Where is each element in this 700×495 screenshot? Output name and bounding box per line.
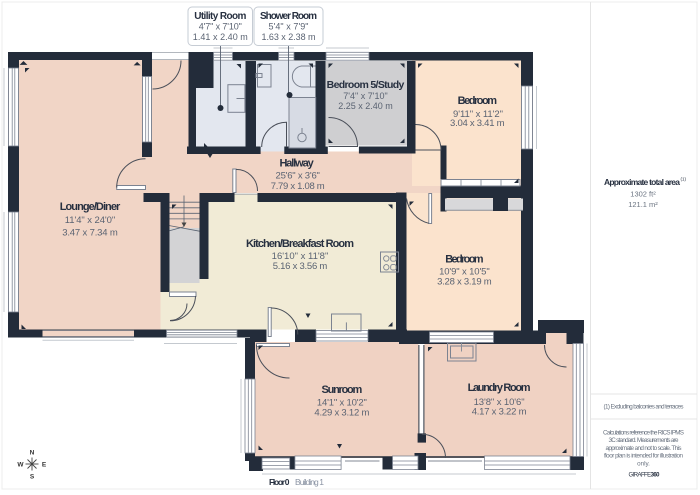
svg-text:Hallway: Hallway — [279, 158, 314, 170]
svg-text:Lounge/Diner: Lounge/Diner — [60, 201, 121, 213]
svg-text:1302 ft²: 1302 ft² — [630, 190, 656, 199]
svg-text:Bedroom: Bedroom — [445, 254, 484, 266]
svg-text:3C standard. Measurements are: 3C standard. Measurements are — [609, 437, 679, 444]
svg-text:S: S — [30, 474, 35, 481]
svg-text:Floor 0: Floor 0 — [269, 477, 290, 487]
svg-text:3.04 x 3.41 m: 3.04 x 3.41 m — [450, 118, 505, 129]
svg-text:Kitchen/Breakfast Room: Kitchen/Breakfast Room — [246, 238, 354, 250]
svg-text:(1): (1) — [681, 177, 687, 182]
svg-text:(1) Excluding balconies and te: (1) Excluding balconies and terraces — [604, 404, 684, 411]
svg-text:7.79 x 1.08 m: 7.79 x 1.08 m — [271, 181, 325, 192]
svg-text:3.28 x 3.19 m: 3.28 x 3.19 m — [437, 277, 492, 288]
svg-text:Approximate total area: Approximate total area — [604, 177, 680, 187]
svg-text:Sunroom: Sunroom — [322, 384, 363, 396]
svg-text:only.: only. — [637, 460, 650, 467]
svg-text:E: E — [42, 462, 47, 469]
svg-text:4.29 x 3.12 m: 4.29 x 3.12 m — [314, 407, 369, 418]
svg-text:3.47 x 7.34 m: 3.47 x 7.34 m — [62, 228, 118, 239]
svg-text:Building 1: Building 1 — [295, 477, 324, 487]
svg-text:Shower Room: Shower Room — [260, 11, 317, 22]
svg-text:Bedroom 5/Study: Bedroom 5/Study — [327, 79, 405, 91]
svg-text:5'4" x 7'9": 5'4" x 7'9" — [269, 22, 309, 32]
svg-text:1.63 x 2.38 m: 1.63 x 2.38 m — [262, 32, 316, 42]
svg-text:11'4" x 24'0": 11'4" x 24'0" — [65, 215, 116, 226]
svg-text:5.16 x 3.56 m: 5.16 x 3.56 m — [273, 261, 328, 272]
svg-text:4.17 x 3.22 m: 4.17 x 3.22 m — [472, 407, 527, 418]
svg-text:W: W — [17, 462, 24, 469]
svg-text:121.1 m²: 121.1 m² — [628, 200, 658, 209]
svg-text:Utility Room: Utility Room — [194, 11, 246, 22]
svg-text:7'4" x 7'10": 7'4" x 7'10" — [343, 91, 388, 101]
svg-text:1.41 x 2.40 m: 1.41 x 2.40 m — [193, 32, 248, 42]
svg-text:N: N — [30, 450, 35, 457]
svg-text:GIRAFFE360: GIRAFFE360 — [629, 473, 661, 479]
svg-text:Laundry Room: Laundry Room — [468, 382, 531, 394]
svg-text:2.25 x 2.40 m: 2.25 x 2.40 m — [338, 101, 392, 111]
svg-text:Calculations reference the RIC: Calculations reference the RICS IPMS — [603, 430, 684, 437]
svg-text:approximate and not to scale.: approximate and not to scale. This — [606, 445, 682, 452]
svg-text:4'7" x 7'10": 4'7" x 7'10" — [199, 22, 242, 32]
svg-text:Bedroom: Bedroom — [458, 95, 498, 107]
svg-text:floor plan is intended for ill: floor plan is intended for illustration — [604, 453, 683, 460]
